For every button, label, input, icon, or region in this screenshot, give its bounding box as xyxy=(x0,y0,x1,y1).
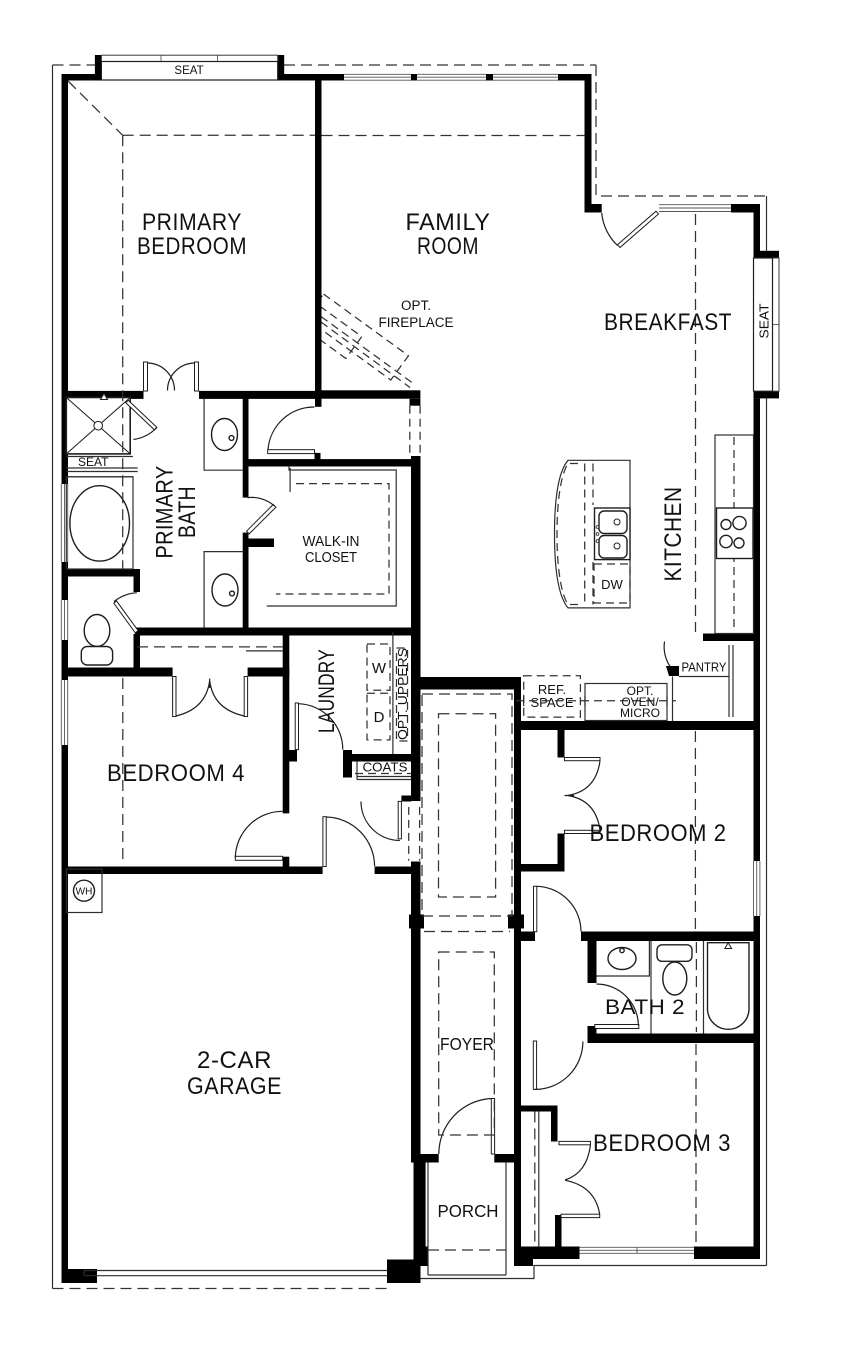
svg-text:OPT.: OPT. xyxy=(401,298,431,313)
svg-text:FAMILY: FAMILY xyxy=(406,209,491,236)
svg-text:WH: WH xyxy=(76,887,93,898)
svg-text:GARAGE: GARAGE xyxy=(187,1073,282,1100)
svg-text:BEDROOM 4: BEDROOM 4 xyxy=(107,760,245,787)
svg-text:MICRO: MICRO xyxy=(620,706,660,720)
svg-text:BATH: BATH xyxy=(174,486,201,538)
svg-text:BATH 2: BATH 2 xyxy=(605,996,685,1019)
svg-text:BREAKFAST: BREAKFAST xyxy=(604,309,732,336)
svg-text:BEDROOM: BEDROOM xyxy=(137,233,247,260)
svg-text:PANTRY: PANTRY xyxy=(682,660,727,675)
svg-text:BEDROOM 3: BEDROOM 3 xyxy=(593,1130,731,1157)
svg-text:SEAT: SEAT xyxy=(758,303,772,338)
svg-text:WALK-IN: WALK-IN xyxy=(303,534,360,550)
svg-text:PRIMARY: PRIMARY xyxy=(142,209,242,236)
svg-text:W: W xyxy=(372,660,387,677)
svg-text:CLOSET: CLOSET xyxy=(305,550,357,566)
svg-text:DW: DW xyxy=(601,577,623,592)
svg-text:LAUNDRY: LAUNDRY xyxy=(314,649,339,733)
svg-text:FOYER: FOYER xyxy=(440,1034,494,1054)
svg-text:D: D xyxy=(374,709,385,726)
svg-text:BEDROOM 2: BEDROOM 2 xyxy=(590,820,727,847)
svg-text:SPACE: SPACE xyxy=(530,695,573,710)
svg-text:KITCHEN: KITCHEN xyxy=(660,487,687,582)
svg-text:ROOM: ROOM xyxy=(417,233,479,260)
svg-text:FIREPLACE: FIREPLACE xyxy=(378,315,453,330)
svg-text:2-CAR: 2-CAR xyxy=(197,1047,272,1074)
svg-text:COATS: COATS xyxy=(363,761,408,775)
svg-text:SEAT: SEAT xyxy=(174,65,203,77)
svg-text:PORCH: PORCH xyxy=(438,1201,499,1221)
svg-text:OPT. UPPERS: OPT. UPPERS xyxy=(396,648,410,740)
